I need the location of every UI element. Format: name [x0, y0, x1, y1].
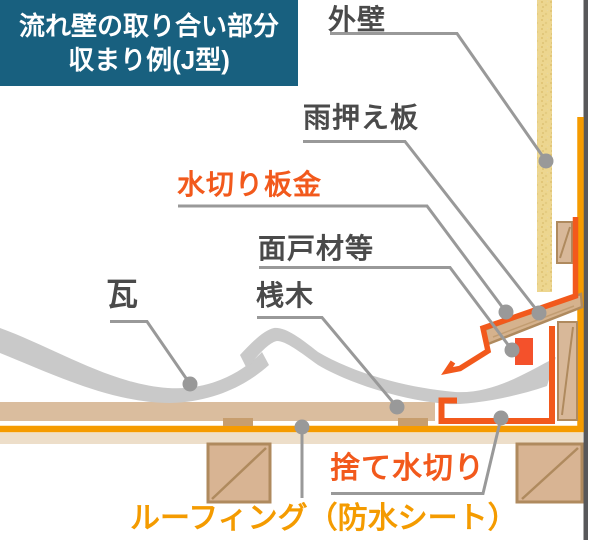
- batten-left: [223, 418, 253, 426]
- tile-right: [240, 328, 556, 404]
- furring-block-upper: [557, 222, 572, 263]
- dot-sangi: [390, 400, 405, 415]
- rafter-left: [208, 444, 270, 502]
- dot-kawara: [183, 377, 198, 392]
- tile-bed-board: [0, 402, 435, 421]
- label-hidden-flashing: 捨て水切り: [330, 452, 485, 485]
- siding-strip: [537, 0, 552, 292]
- label-mendo-filler: 面戸材等: [258, 234, 374, 265]
- label-flashing-sheet-metal: 水切り板金: [177, 170, 322, 201]
- title-line2: 収まり例(J型): [68, 43, 230, 77]
- dot-sute-mizukiri: [494, 411, 509, 426]
- leader-kawara: [110, 322, 190, 385]
- label-roofing-sheet: ルーフィング（防水シート）: [130, 502, 518, 535]
- leader-amaosaeita: [303, 142, 539, 314]
- batten-right: [398, 418, 428, 426]
- title-line1: 流れ壁の取り合い部分: [19, 9, 279, 43]
- tile-left: [0, 328, 269, 403]
- roof-wall-junction-diagram: 流れ壁の取り合い部分 収まり例(J型) 外壁 雨押え板 水切り板金 面戸材等 桟…: [0, 0, 600, 540]
- furring-board-lower: [558, 322, 577, 420]
- title-box: 流れ壁の取り合い部分 収まり例(J型): [0, 0, 298, 86]
- dot-mendozai: [505, 343, 520, 358]
- dot-gaiheki: [539, 154, 554, 169]
- label-exterior-wall: 外壁: [328, 5, 386, 36]
- label-batten: 桟木: [256, 281, 314, 312]
- dot-roofing: [295, 420, 310, 435]
- dot-mizukiri: [499, 305, 514, 320]
- dot-amaosaeita: [532, 306, 547, 321]
- label-tile: 瓦: [106, 277, 139, 312]
- rafter-right: [517, 444, 582, 502]
- label-rain-catch-board: 雨押え板: [303, 103, 419, 134]
- wall-structure-line: [584, 0, 589, 540]
